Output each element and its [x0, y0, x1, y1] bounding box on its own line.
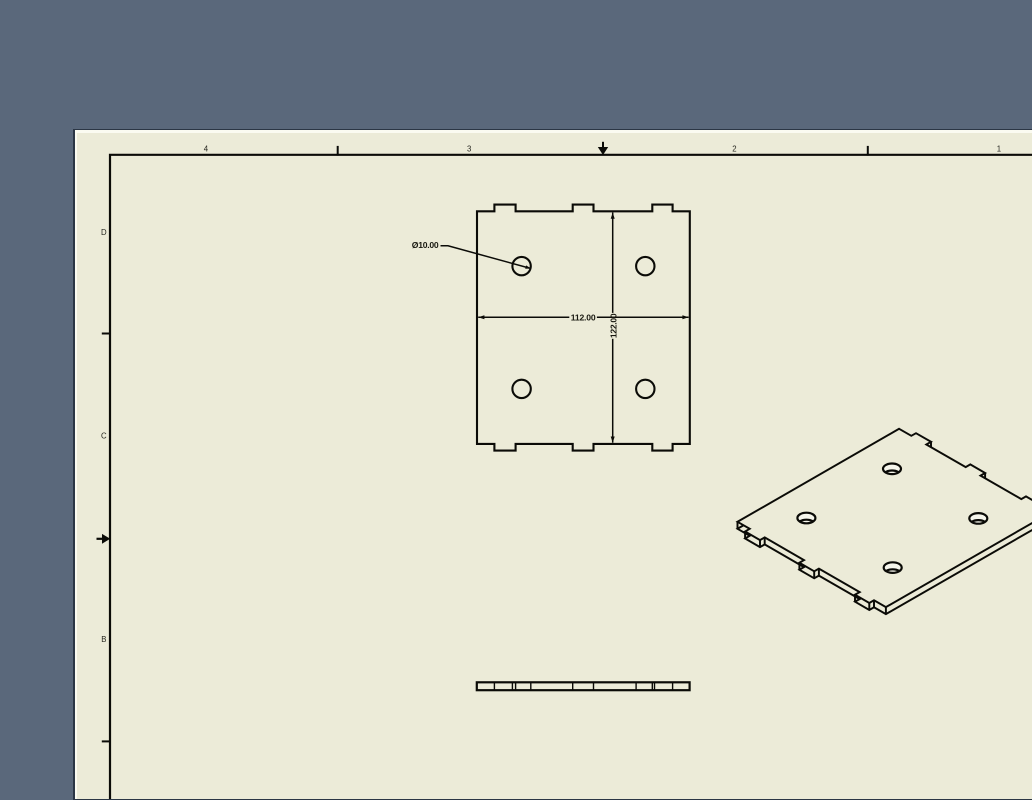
- svg-text:122.00: 122.00: [608, 313, 618, 338]
- svg-text:2: 2: [732, 144, 736, 153]
- svg-text:112.00: 112.00: [571, 312, 596, 322]
- svg-text:1: 1: [997, 144, 1001, 153]
- svg-text:3: 3: [467, 144, 471, 153]
- svg-text:C: C: [101, 431, 107, 440]
- svg-text:4: 4: [204, 144, 209, 153]
- svg-text:Ø10.00: Ø10.00: [412, 240, 439, 250]
- svg-text:B: B: [101, 635, 106, 644]
- svg-text:D: D: [101, 228, 107, 237]
